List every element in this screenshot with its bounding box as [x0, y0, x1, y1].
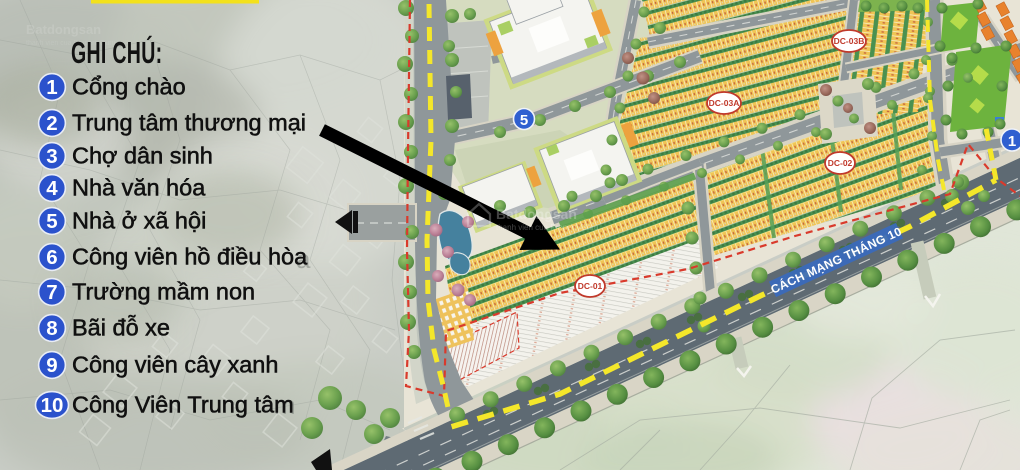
svg-text:4: 4 — [46, 177, 58, 200]
svg-text:Công viên hồ điều hòa: Công viên hồ điều hòa — [72, 244, 308, 270]
svg-text:DC-03B: DC-03B — [834, 36, 865, 46]
svg-text:Nhà ở xã hội: Nhà ở xã hội — [72, 208, 206, 234]
svg-text:DC-01: DC-01 — [578, 281, 603, 291]
svg-text:Chợ dân sinh: Chợ dân sinh — [72, 143, 213, 169]
svg-text:1: 1 — [46, 76, 57, 99]
svg-text:Cổng chào: Cổng chào — [72, 74, 186, 100]
svg-text:DC-02: DC-02 — [828, 158, 853, 168]
svg-text:2: 2 — [46, 112, 57, 135]
svg-text:6: 6 — [46, 246, 57, 269]
svg-text:9: 9 — [46, 354, 57, 377]
svg-text:5: 5 — [520, 112, 528, 129]
svg-text:5: 5 — [46, 210, 57, 233]
svg-text:Trung tâm thương mại: Trung tâm thương mại — [72, 110, 306, 136]
svg-text:DC-03A: DC-03A — [709, 98, 740, 108]
svg-text:Batdongsan: Batdongsan — [26, 22, 101, 37]
svg-text:GHI CHÚ:: GHI CHÚ: — [71, 34, 162, 70]
svg-text:Nhà văn hóa: Nhà văn hóa — [72, 175, 206, 201]
svg-text:Bãi đỗ xe: Bãi đỗ xe — [72, 315, 170, 341]
svg-text:thanh vien cua PropertyGuru: thanh vien cua PropertyGuru — [496, 223, 598, 232]
svg-text:10: 10 — [41, 394, 64, 417]
svg-text:1: 1 — [1008, 133, 1016, 150]
svg-text:8: 8 — [46, 317, 57, 340]
svg-text:Batdongsan: Batdongsan — [496, 206, 577, 222]
svg-text:Trường mầm non: Trường mầm non — [72, 279, 255, 305]
svg-text:Công Viên Trung tâm: Công Viên Trung tâm — [72, 392, 294, 418]
svg-text:Công viên cây xanh: Công viên cây xanh — [72, 352, 278, 378]
svg-text:3: 3 — [46, 145, 57, 168]
svg-text:7: 7 — [46, 281, 57, 304]
